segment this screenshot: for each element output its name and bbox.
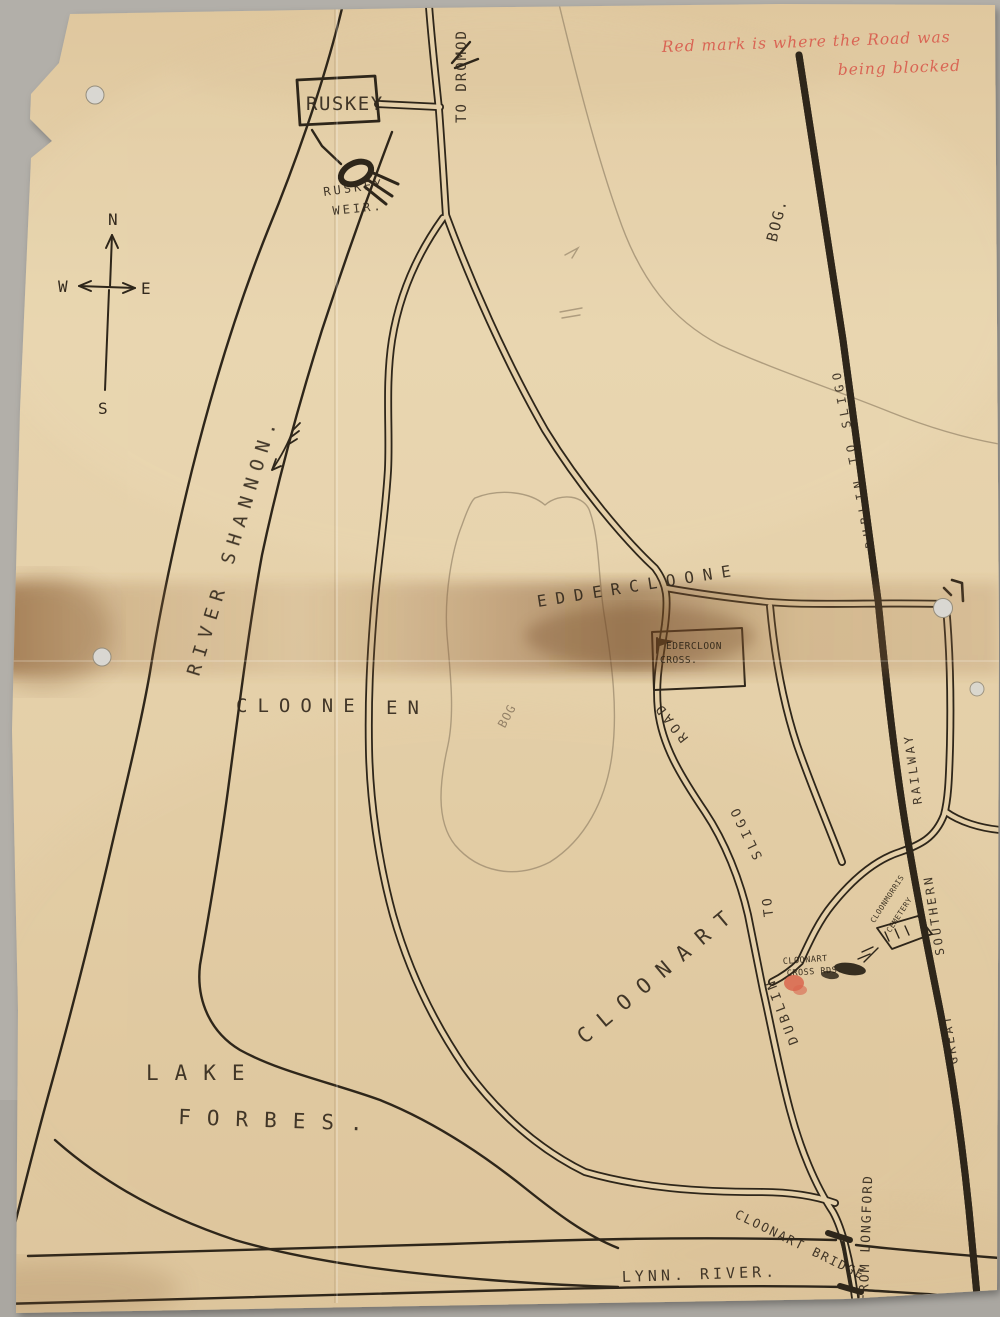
edercloon-cross-label-2: CROSS. bbox=[660, 655, 697, 666]
clooneen-label-1: CLOONE bbox=[236, 695, 365, 717]
clooneen-label-2: EN bbox=[386, 697, 429, 719]
to-dromod-label: TO DROMOD bbox=[454, 29, 470, 123]
map-photo: RUSKEY TO DROMOD RUSKEY WEIR. RIVER SHAN… bbox=[0, 0, 1000, 1317]
road-to-label: TO bbox=[760, 894, 778, 917]
lake-label-1: LAKE bbox=[146, 1061, 261, 1085]
ruskey-label: RUSKEY bbox=[306, 93, 384, 115]
map-svg: RUSKEY TO DROMOD RUSKEY WEIR. RIVER SHAN… bbox=[0, 0, 1000, 1317]
edercloon-cross-label-1: EDERCLOON bbox=[666, 641, 722, 652]
compass-south-label: S bbox=[98, 399, 108, 418]
compass-east-label: E bbox=[141, 279, 151, 298]
compass-west-label: W bbox=[58, 277, 68, 296]
compass-north-label: N bbox=[108, 210, 118, 229]
